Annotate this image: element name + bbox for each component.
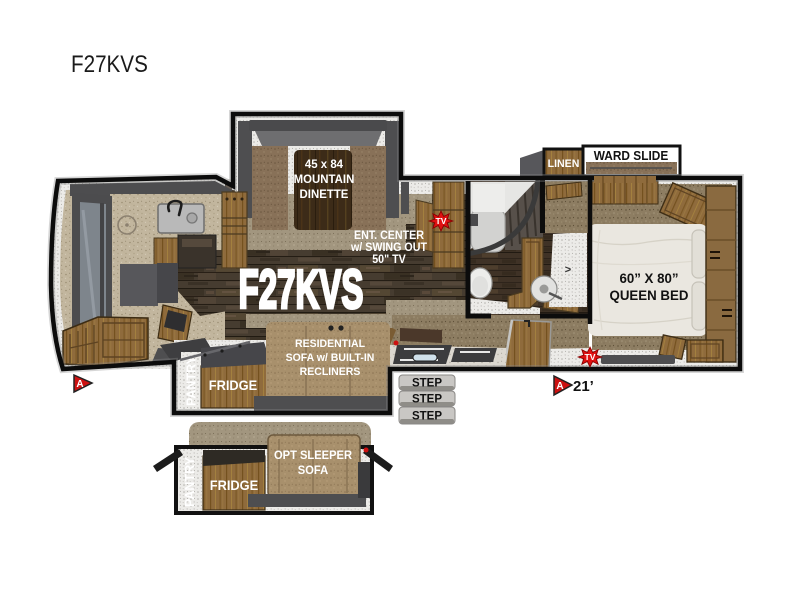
svg-text:F27KVS: F27KVS [239, 258, 364, 320]
svg-text:STEP: STEP [412, 378, 442, 390]
svg-text:60” X 80”: 60” X 80” [619, 271, 678, 286]
svg-text:50" TV: 50" TV [372, 254, 406, 266]
svg-text:SOFA: SOFA [298, 465, 329, 477]
svg-text:w/ SWING OUT: w/ SWING OUT [350, 242, 427, 254]
svg-text:TV: TV [585, 352, 596, 362]
svg-text:FRIDGE: FRIDGE [209, 378, 258, 393]
svg-text:RECLINERS: RECLINERS [300, 366, 361, 378]
svg-text:FRIDGE: FRIDGE [210, 478, 259, 493]
svg-text:LINEN: LINEN [548, 158, 580, 170]
svg-text:A: A [76, 379, 83, 390]
svg-text:>: > [565, 264, 571, 276]
svg-text:PANTRY: PANTRY [183, 456, 197, 507]
svg-text:STEP: STEP [412, 394, 442, 406]
svg-text:MOUNTAIN: MOUNTAIN [294, 172, 355, 186]
svg-text:A: A [556, 381, 563, 392]
svg-text:21’: 21’ [573, 378, 594, 395]
svg-text:SOFA w/ BUILT-IN: SOFA w/ BUILT-IN [286, 352, 375, 364]
svg-text:45 x 84: 45 x 84 [305, 157, 343, 171]
svg-text:DINETTE: DINETTE [300, 187, 349, 201]
svg-text:QUEEN BED: QUEEN BED [609, 288, 688, 303]
svg-text:STEP: STEP [412, 411, 442, 423]
svg-text:RESIDENTIAL: RESIDENTIAL [295, 338, 365, 350]
svg-text:WARD SLIDE: WARD SLIDE [594, 149, 669, 163]
svg-text:F27KVS: F27KVS [71, 51, 148, 78]
svg-text:OPT SLEEPER: OPT SLEEPER [274, 450, 353, 462]
svg-text:PANTRY: PANTRY [185, 355, 199, 406]
svg-text:ENT. CENTER: ENT. CENTER [354, 230, 424, 242]
svg-text:TV: TV [436, 216, 447, 226]
